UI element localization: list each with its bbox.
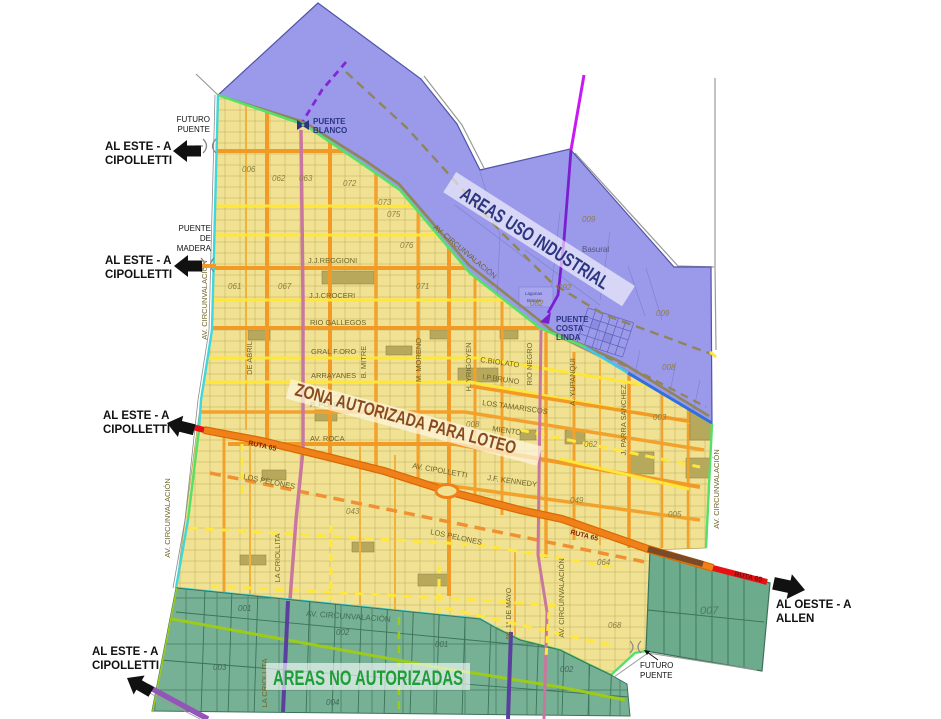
svg-text:PUENTE: PUENTE: [178, 125, 210, 134]
svg-text:CIPOLLETTI: CIPOLLETTI: [92, 660, 159, 672]
svg-text:CIPOLLETTI: CIPOLLETTI: [105, 155, 172, 167]
svg-text:092: 092: [558, 283, 572, 292]
svg-text:007: 007: [700, 605, 719, 617]
svg-text:AL ESTE - A: AL ESTE - A: [105, 255, 171, 267]
svg-text:072: 072: [343, 179, 357, 188]
svg-text:003: 003: [213, 663, 227, 672]
svg-text:001: 001: [435, 640, 448, 649]
svg-text:075: 075: [387, 210, 401, 219]
svg-text:Basural: Basural: [582, 245, 609, 254]
svg-text:002: 002: [560, 665, 574, 674]
svg-text:AV. CIRCUNVALACIÓN: AV. CIRCUNVALACIÓN: [557, 558, 566, 637]
svg-text:068: 068: [608, 621, 622, 630]
svg-text:H. YRIGOYEN: H. YRIGOYEN: [464, 342, 473, 391]
svg-text:LINDA: LINDA: [556, 333, 581, 342]
svg-text:008: 008: [662, 363, 676, 372]
svg-text:GRAL F.ORO: GRAL F.ORO: [311, 347, 356, 356]
svg-text:J.J.CROCERI: J.J.CROCERI: [309, 291, 355, 300]
svg-text:003: 003: [653, 413, 667, 422]
svg-text:RIO NEGRO: RIO NEGRO: [525, 342, 534, 385]
svg-text:AV. CIRCUNVALACIÓN: AV. CIRCUNVALACIÓN: [712, 449, 721, 528]
svg-text:061: 061: [228, 282, 241, 291]
svg-text:AV. CIRCUNVALACIÓN: AV. CIRCUNVALACIÓN: [163, 478, 172, 557]
svg-text:AL ESTE - A: AL ESTE - A: [105, 141, 171, 153]
svg-text:FUTURO: FUTURO: [177, 115, 210, 124]
svg-text:COSTA: COSTA: [556, 324, 584, 333]
svg-text:MADERA: MADERA: [177, 244, 212, 253]
svg-text:049: 049: [570, 496, 584, 505]
svg-text:082: 082: [530, 299, 544, 308]
svg-text:073: 073: [378, 198, 392, 207]
svg-text:002: 002: [336, 628, 350, 637]
svg-text:043: 043: [346, 507, 360, 516]
svg-text:CIPOLLETTI: CIPOLLETTI: [105, 269, 172, 281]
svg-text:PUENTE: PUENTE: [313, 117, 346, 126]
svg-text:J. PARRA SANCHEZ: J. PARRA SANCHEZ: [619, 384, 628, 455]
svg-text:AL OESTE - A: AL OESTE - A: [776, 599, 851, 611]
svg-text:AL ESTE - A: AL ESTE - A: [103, 410, 169, 422]
svg-text:CIPOLLETTI: CIPOLLETTI: [103, 424, 170, 436]
svg-text:J.J.REGGIONI: J.J.REGGIONI: [308, 256, 357, 265]
svg-text:B. MITRE: B. MITRE: [359, 346, 368, 379]
svg-text:DE: DE: [200, 234, 211, 243]
svg-text:071: 071: [416, 282, 429, 291]
svg-text:RIO GALLEGOS: RIO GALLEGOS: [310, 318, 366, 327]
svg-text:AV. ROCA: AV. ROCA: [310, 434, 345, 443]
svg-text:004: 004: [326, 698, 340, 707]
svg-text:ALLEN: ALLEN: [776, 613, 814, 625]
svg-text:PUENTE: PUENTE: [179, 224, 211, 233]
svg-text:A. YUPANQUI: A. YUPANQUI: [568, 358, 577, 406]
svg-text:009: 009: [656, 309, 670, 318]
svg-text:062: 062: [272, 174, 286, 183]
svg-text:AL ESTE - A: AL ESTE - A: [92, 646, 158, 658]
svg-text:DE ABRIL: DE ABRIL: [245, 341, 254, 375]
svg-text:AREAS NO AUTORIZADAS: AREAS NO AUTORIZADAS: [273, 666, 463, 690]
svg-text:076: 076: [400, 241, 414, 250]
svg-text:064: 064: [597, 558, 611, 567]
svg-text:062: 062: [584, 440, 598, 449]
svg-text:AV. 1° DE MAYO: AV. 1° DE MAYO: [505, 587, 513, 640]
svg-text:063: 063: [299, 174, 313, 183]
svg-text:ARRAYANES: ARRAYANES: [311, 371, 356, 380]
svg-text:M. MORENO: M. MORENO: [414, 338, 423, 382]
svg-text:LA CRIOLLITA: LA CRIOLLITA: [273, 533, 282, 582]
svg-text:Lagunas: Lagunas: [525, 291, 543, 296]
svg-text:005: 005: [668, 510, 682, 519]
svg-text:067: 067: [278, 282, 292, 291]
svg-text:BLANCO: BLANCO: [313, 126, 347, 135]
svg-text:PUENTE: PUENTE: [556, 315, 589, 324]
svg-text:001: 001: [238, 604, 251, 613]
svg-text:006: 006: [242, 165, 256, 174]
svg-text:009: 009: [582, 215, 596, 224]
svg-text:PUENTE: PUENTE: [640, 671, 672, 680]
svg-text:FUTURO: FUTURO: [640, 661, 673, 670]
